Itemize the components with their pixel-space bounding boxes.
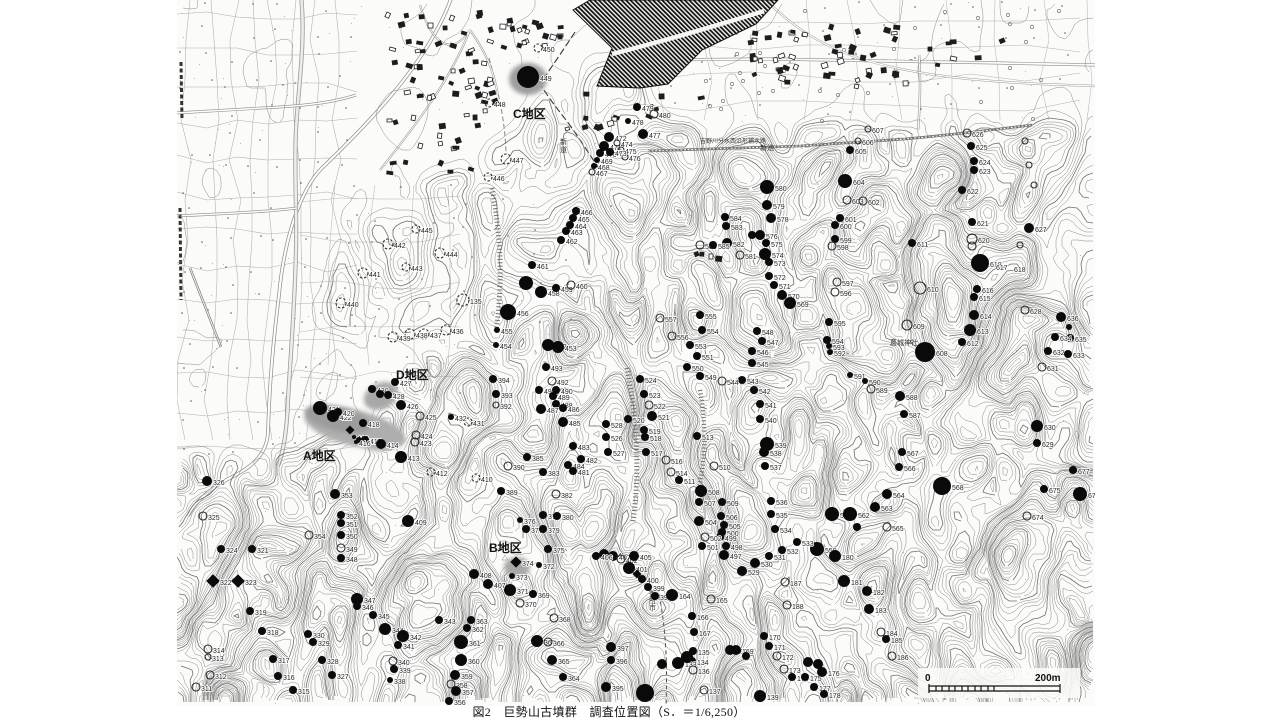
svg-text:505: 505: [729, 524, 741, 531]
svg-text:374: 374: [522, 561, 534, 568]
svg-text:595: 595: [834, 321, 846, 328]
svg-text:340: 340: [398, 660, 410, 667]
svg-text:486: 486: [568, 407, 580, 414]
svg-text:393: 393: [501, 393, 513, 400]
svg-text:480: 480: [659, 113, 671, 120]
svg-text:531: 531: [774, 555, 786, 562]
svg-text:477: 477: [649, 133, 661, 140]
svg-text:325: 325: [208, 515, 220, 522]
svg-text:548: 548: [762, 330, 774, 337]
svg-text:382: 382: [561, 493, 573, 500]
svg-text:329: 329: [318, 641, 330, 648]
svg-text:606: 606: [862, 140, 874, 147]
svg-text:596: 596: [840, 291, 852, 298]
svg-text:A地区: A地区: [303, 448, 336, 463]
svg-text:339: 339: [399, 668, 411, 675]
svg-text:吉野川分水西沿形補水路: 吉野川分水西沿形補水路: [700, 137, 766, 145]
svg-text:410: 410: [481, 477, 493, 484]
svg-text:450: 450: [543, 47, 555, 54]
svg-text:521: 521: [658, 415, 670, 422]
svg-text:324: 324: [226, 548, 238, 555]
svg-text:137: 137: [709, 689, 721, 696]
svg-text:437: 437: [430, 333, 442, 340]
svg-text:551: 551: [702, 355, 714, 362]
svg-text:371: 371: [517, 589, 529, 596]
svg-text:368: 368: [559, 617, 571, 624]
svg-text:489: 489: [558, 395, 570, 402]
svg-text:459: 459: [561, 287, 573, 294]
svg-text:566: 566: [904, 466, 916, 473]
svg-text:362: 362: [472, 627, 484, 634]
svg-text:487: 487: [547, 408, 559, 415]
svg-text:178: 178: [829, 693, 841, 700]
svg-text:483: 483: [578, 445, 590, 452]
svg-text:608: 608: [936, 351, 948, 358]
svg-text:425: 425: [425, 415, 437, 422]
svg-text:539: 539: [775, 443, 787, 450]
svg-text:634: 634: [1060, 336, 1072, 343]
svg-text:615: 615: [979, 296, 991, 303]
svg-text:133: 133: [685, 662, 697, 669]
svg-text:527: 527: [613, 451, 625, 458]
svg-text:365: 365: [558, 659, 570, 666]
svg-text:599: 599: [840, 238, 852, 245]
svg-text:585: 585: [718, 244, 730, 251]
svg-text:418: 418: [368, 422, 380, 429]
svg-text:183: 183: [875, 608, 887, 615]
svg-text:575: 575: [771, 242, 783, 249]
svg-text:622: 622: [967, 189, 979, 196]
svg-text:葛城神社: 葛城神社: [890, 338, 918, 347]
svg-text:581: 581: [745, 254, 757, 261]
svg-text:506: 506: [726, 515, 738, 522]
svg-text:522: 522: [654, 404, 666, 411]
svg-text:587: 587: [909, 413, 921, 420]
svg-text:462: 462: [566, 239, 578, 246]
svg-text:186: 186: [897, 655, 909, 662]
svg-text:563: 563: [881, 506, 893, 513]
svg-text:533: 533: [802, 541, 814, 548]
svg-text:328: 328: [327, 659, 339, 666]
svg-text:540: 540: [765, 418, 777, 425]
svg-text:200m: 200m: [1035, 673, 1061, 684]
svg-text:311: 311: [201, 686, 212, 693]
svg-text:375: 375: [553, 548, 565, 555]
svg-text:532: 532: [787, 549, 799, 556]
svg-text:353: 353: [341, 493, 353, 500]
svg-text:463: 463: [571, 230, 583, 237]
svg-text:380: 380: [562, 515, 574, 522]
svg-text:431: 431: [473, 421, 485, 428]
svg-text:618: 618: [1014, 267, 1026, 274]
svg-text:454: 454: [500, 344, 512, 351]
svg-text:534: 534: [780, 528, 792, 535]
svg-text:571: 571: [779, 284, 791, 291]
svg-text:444: 444: [446, 252, 458, 259]
svg-text:360: 360: [468, 659, 480, 666]
svg-text:481: 481: [578, 470, 590, 477]
svg-text:675: 675: [1049, 488, 1061, 495]
svg-text:479: 479: [642, 106, 654, 113]
svg-text:543: 543: [747, 379, 759, 386]
svg-text:136: 136: [698, 669, 710, 676]
svg-text:359: 359: [461, 674, 473, 681]
svg-text:545: 545: [757, 362, 769, 369]
svg-text:613: 613: [977, 329, 989, 336]
svg-text:363: 363: [476, 619, 488, 626]
svg-text:518: 518: [650, 436, 662, 443]
svg-text:135: 135: [698, 650, 710, 657]
svg-text:446: 446: [493, 176, 505, 183]
svg-text:447: 447: [512, 158, 524, 165]
svg-text:385: 385: [532, 456, 544, 463]
svg-text:405: 405: [640, 555, 652, 562]
svg-text:627: 627: [1035, 227, 1047, 234]
svg-text:600: 600: [840, 224, 852, 231]
svg-text:172: 172: [782, 655, 794, 662]
svg-text:321: 321: [257, 548, 269, 555]
svg-text:427: 427: [400, 381, 412, 388]
svg-text:170: 170: [769, 635, 781, 642]
svg-text:478: 478: [632, 120, 644, 127]
svg-text:601: 601: [845, 217, 857, 224]
svg-text:598: 598: [837, 245, 849, 252]
svg-text:504: 504: [705, 520, 717, 527]
svg-text:342: 342: [410, 635, 422, 642]
svg-text:350: 350: [346, 534, 358, 541]
svg-text:188: 188: [792, 604, 804, 611]
svg-text:589: 589: [876, 388, 888, 395]
svg-text:314: 314: [213, 648, 225, 655]
svg-text:399: 399: [653, 586, 665, 593]
svg-text:574: 574: [772, 253, 784, 260]
svg-text:544: 544: [727, 380, 739, 387]
svg-text:394: 394: [498, 378, 510, 385]
svg-text:187: 187: [790, 581, 802, 588]
svg-text:509: 509: [727, 501, 739, 508]
svg-text:370: 370: [525, 602, 537, 609]
svg-text:458: 458: [548, 291, 560, 298]
svg-text:482: 482: [586, 458, 598, 465]
svg-text:677: 677: [1078, 469, 1090, 476]
svg-text:175: 175: [810, 676, 822, 683]
svg-text:349: 349: [346, 547, 358, 554]
svg-text:621: 621: [977, 221, 989, 228]
svg-text:366: 366: [553, 641, 565, 648]
svg-text:445: 445: [421, 228, 433, 235]
svg-text:373: 373: [516, 575, 528, 582]
svg-text:584: 584: [730, 216, 742, 223]
svg-text:523: 523: [649, 393, 661, 400]
svg-text:413: 413: [408, 456, 420, 463]
svg-text:383: 383: [548, 471, 560, 478]
svg-text:592: 592: [834, 351, 846, 358]
svg-text:674: 674: [1032, 515, 1044, 522]
svg-text:535: 535: [776, 513, 788, 520]
svg-text:396: 396: [616, 659, 628, 666]
svg-text:379: 379: [548, 528, 560, 535]
svg-text:609: 609: [913, 324, 925, 331]
svg-text:538: 538: [770, 451, 782, 458]
svg-text:395: 395: [612, 686, 624, 693]
svg-text:316: 316: [283, 675, 295, 682]
svg-text:611: 611: [917, 242, 928, 249]
svg-text:630: 630: [1044, 425, 1056, 432]
svg-text:376: 376: [524, 519, 536, 526]
svg-text:408: 408: [480, 573, 492, 580]
svg-text:354: 354: [314, 534, 326, 541]
svg-text:441: 441: [369, 272, 381, 279]
svg-text:597: 597: [842, 281, 854, 288]
svg-text:423: 423: [420, 441, 432, 448]
svg-text:346: 346: [362, 605, 374, 612]
svg-text:317: 317: [278, 658, 290, 665]
svg-text:185: 185: [891, 638, 903, 645]
svg-text:625: 625: [976, 145, 988, 152]
svg-text:635: 635: [1075, 337, 1087, 344]
svg-text:416: 416: [359, 441, 371, 448]
svg-text:357: 357: [462, 690, 474, 697]
svg-text:443: 443: [411, 266, 423, 273]
svg-text:516: 516: [671, 459, 683, 466]
svg-text:167: 167: [699, 631, 711, 638]
svg-text:541: 541: [765, 403, 777, 410]
svg-text:624: 624: [979, 160, 991, 167]
svg-text:610: 610: [927, 287, 939, 294]
svg-text:312: 312: [215, 674, 227, 681]
svg-text:632: 632: [1053, 350, 1065, 357]
svg-text:612: 612: [967, 341, 979, 348]
svg-text:501: 501: [707, 545, 719, 552]
svg-text:614: 614: [980, 314, 992, 321]
svg-text:620: 620: [978, 238, 990, 245]
svg-text:347: 347: [364, 598, 376, 605]
svg-text:465: 465: [578, 217, 590, 224]
svg-text:508: 508: [708, 490, 720, 497]
svg-text:492: 492: [557, 380, 569, 387]
svg-text:319: 319: [255, 610, 267, 617]
svg-text:409: 409: [415, 520, 427, 527]
svg-text:351: 351: [346, 522, 358, 529]
svg-text:389: 389: [506, 490, 518, 497]
svg-text:537: 537: [770, 465, 782, 472]
svg-text:322: 322: [220, 580, 232, 587]
svg-text:0: 0: [925, 673, 931, 684]
svg-text:510: 510: [719, 465, 731, 472]
svg-text:164: 164: [679, 594, 691, 601]
svg-text:623: 623: [979, 169, 991, 176]
svg-text:318: 318: [267, 630, 279, 637]
svg-text:582: 582: [733, 242, 745, 249]
svg-text:579: 579: [773, 204, 785, 211]
svg-text:573: 573: [774, 261, 786, 268]
svg-text:181: 181: [851, 580, 863, 587]
svg-text:497: 497: [730, 554, 742, 561]
svg-text:図2 巨勢山古墳群 調査位置図（S．＝1/6,250）: 図2 巨勢山古墳群 調査位置図（S．＝1/6,250）: [472, 704, 745, 719]
svg-text:455: 455: [501, 329, 513, 336]
svg-text:372: 372: [543, 564, 555, 571]
svg-text:524: 524: [645, 378, 657, 385]
svg-text:182: 182: [873, 590, 885, 597]
svg-text:511: 511: [684, 479, 695, 486]
svg-text:546: 546: [757, 350, 769, 357]
svg-text:461: 461: [537, 264, 549, 271]
svg-text:171: 171: [774, 645, 786, 652]
svg-text:605: 605: [855, 149, 867, 156]
svg-text:554: 554: [707, 329, 719, 336]
svg-text:313: 313: [212, 656, 224, 663]
svg-text:453: 453: [565, 346, 577, 353]
svg-text:364: 364: [568, 676, 580, 683]
svg-text:553: 553: [695, 344, 707, 351]
svg-text:D地区: D地区: [396, 367, 429, 382]
svg-text:180: 180: [842, 555, 854, 562]
svg-text:新池: 新池: [760, 143, 774, 152]
svg-text:590: 590: [869, 380, 881, 387]
svg-text:629: 629: [1042, 442, 1054, 449]
svg-text:176: 176: [828, 671, 840, 678]
svg-text:628: 628: [1030, 309, 1042, 316]
svg-text:529: 529: [748, 570, 760, 577]
svg-text:562: 562: [858, 513, 870, 520]
svg-text:485: 485: [569, 421, 581, 428]
svg-text:166: 166: [697, 615, 709, 622]
svg-text:519: 519: [649, 429, 661, 436]
svg-text:327: 327: [337, 674, 349, 681]
svg-text:442: 442: [394, 243, 406, 250]
svg-text:439: 439: [399, 336, 411, 343]
svg-text:369: 369: [538, 593, 550, 600]
svg-text:420: 420: [343, 411, 355, 418]
svg-text:616: 616: [982, 288, 994, 295]
svg-text:517: 517: [651, 451, 663, 458]
svg-text:343: 343: [444, 619, 456, 626]
svg-text:341: 341: [403, 644, 415, 651]
svg-text:520: 520: [633, 418, 645, 425]
svg-text:588: 588: [906, 395, 918, 402]
svg-text:356: 356: [454, 700, 466, 707]
svg-text:436: 436: [452, 329, 464, 336]
svg-text:438: 438: [416, 333, 428, 340]
svg-text:412: 412: [436, 471, 448, 478]
svg-text:565: 565: [892, 526, 904, 533]
svg-text:361: 361: [469, 641, 481, 648]
svg-text:572: 572: [774, 275, 786, 282]
svg-text:513: 513: [702, 435, 714, 442]
svg-text:536: 536: [776, 500, 788, 507]
svg-text:549: 549: [705, 375, 717, 382]
svg-text:165: 165: [716, 598, 728, 605]
svg-text:B地区: B地区: [489, 540, 522, 555]
svg-text:583: 583: [731, 225, 743, 232]
svg-text:139: 139: [767, 695, 779, 702]
svg-text:134: 134: [697, 660, 709, 667]
svg-text:602: 602: [868, 200, 880, 207]
svg-text:631: 631: [1047, 366, 1059, 373]
svg-text:557: 557: [665, 317, 677, 324]
svg-text:493: 493: [551, 366, 563, 373]
svg-text:580: 580: [775, 186, 787, 193]
svg-text:507: 507: [704, 501, 716, 508]
svg-text:448: 448: [494, 102, 506, 109]
svg-text:636: 636: [1067, 316, 1079, 323]
svg-text:617: 617: [996, 265, 1008, 272]
svg-text:604: 604: [853, 180, 865, 187]
svg-text:345: 345: [378, 614, 390, 621]
svg-text:466: 466: [581, 210, 593, 217]
svg-text:460: 460: [576, 284, 588, 291]
svg-text:476: 476: [629, 156, 641, 163]
svg-text:530: 530: [761, 562, 773, 569]
svg-text:326: 326: [213, 480, 225, 487]
svg-text:528: 528: [611, 423, 623, 430]
svg-text:542: 542: [759, 389, 771, 396]
svg-text:新道: 新道: [560, 137, 568, 154]
svg-text:467: 467: [596, 171, 608, 178]
svg-text:348: 348: [346, 557, 358, 564]
svg-text:569: 569: [797, 302, 809, 309]
svg-text:407: 407: [494, 583, 506, 590]
svg-text:473: 473: [615, 151, 627, 158]
svg-text:414: 414: [387, 443, 399, 450]
svg-text:567: 567: [907, 451, 919, 458]
svg-text:547: 547: [767, 340, 779, 347]
svg-text:456: 456: [517, 311, 529, 318]
svg-text:578: 578: [777, 217, 789, 224]
svg-text:550: 550: [692, 366, 704, 373]
svg-text:135: 135: [470, 299, 482, 306]
svg-text:352: 352: [346, 514, 358, 521]
svg-text:428: 428: [393, 394, 405, 401]
svg-text:315: 315: [298, 689, 310, 696]
svg-text:338: 338: [394, 679, 406, 686]
svg-text:C地区: C地区: [513, 106, 546, 121]
svg-text:449: 449: [540, 76, 552, 83]
svg-text:502: 502: [710, 536, 722, 543]
svg-text:323: 323: [245, 580, 257, 587]
svg-text:498: 498: [731, 545, 743, 552]
svg-text:555: 555: [705, 314, 717, 321]
svg-text:426: 426: [407, 404, 419, 411]
svg-text:432: 432: [455, 416, 467, 423]
svg-text:440: 440: [347, 302, 359, 309]
svg-text:556: 556: [677, 335, 689, 342]
svg-text:392: 392: [500, 404, 512, 411]
svg-text:526: 526: [611, 436, 623, 443]
svg-text:626: 626: [972, 132, 984, 139]
svg-text:390: 390: [513, 465, 525, 472]
svg-text:568: 568: [952, 485, 964, 492]
svg-text:499: 499: [725, 536, 737, 543]
svg-text:406: 406: [601, 555, 613, 562]
svg-text:633: 633: [1073, 353, 1085, 360]
svg-text:424: 424: [421, 434, 433, 441]
svg-text:564: 564: [893, 493, 905, 500]
svg-text:397: 397: [617, 646, 629, 653]
svg-text:607: 607: [872, 128, 884, 135]
